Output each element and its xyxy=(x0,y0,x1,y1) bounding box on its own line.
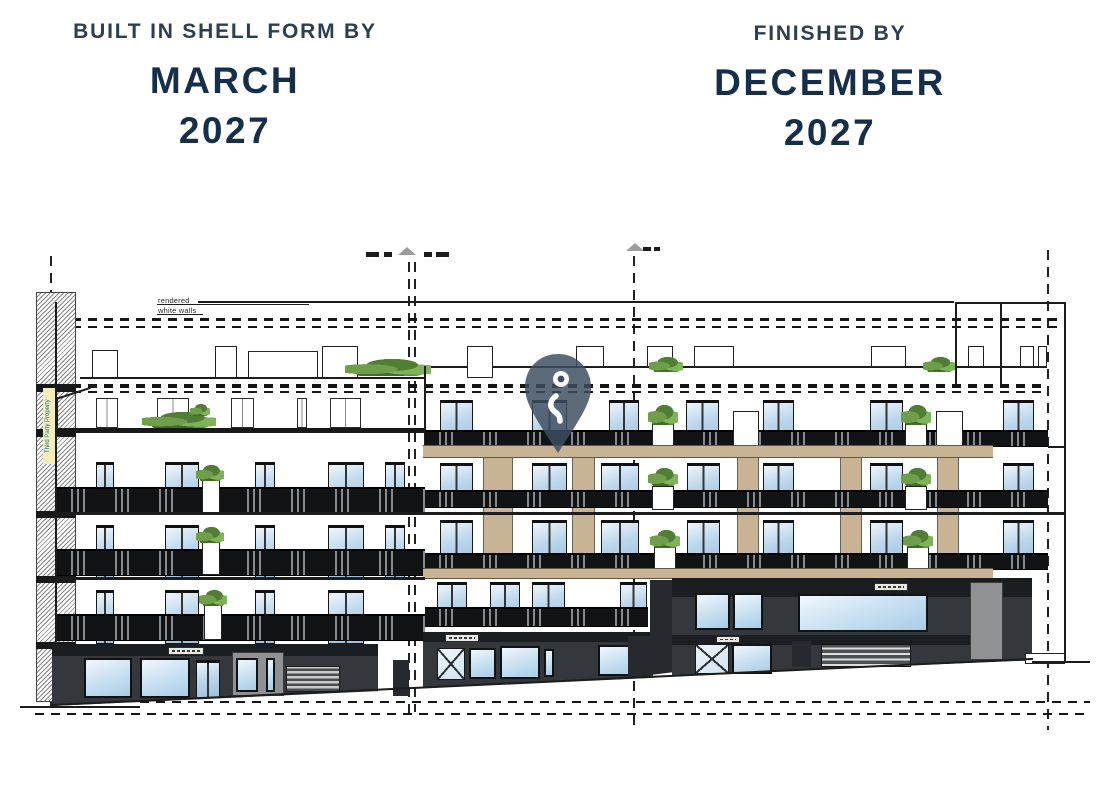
section-marker xyxy=(384,252,392,257)
planter-pot xyxy=(202,541,220,575)
plant xyxy=(196,465,224,481)
shop-window xyxy=(695,593,730,630)
roof-line xyxy=(198,301,954,303)
shop-window xyxy=(236,658,258,692)
plant xyxy=(901,405,931,425)
roof-structure xyxy=(248,351,318,378)
storefront-fascia xyxy=(52,644,378,656)
shop-sign xyxy=(168,647,204,655)
ground-line xyxy=(20,706,140,708)
shop-window xyxy=(140,658,190,698)
balcony-railing xyxy=(57,487,425,514)
elevation-drawing: rendered white walls Third Party Propert… xyxy=(0,0,1114,800)
balcony-railing xyxy=(425,490,1048,508)
wall-return xyxy=(650,580,674,675)
planter-box xyxy=(733,411,759,446)
party-wall-label: Third Party Property xyxy=(43,388,55,464)
plant xyxy=(901,468,931,486)
roof-hedge xyxy=(649,357,683,372)
shop-window xyxy=(544,649,554,677)
section-marker xyxy=(366,252,379,257)
roof-edge xyxy=(1000,302,1002,386)
edge-line xyxy=(1048,446,1065,448)
roof-edge xyxy=(955,302,957,386)
penthouse-window xyxy=(297,398,307,428)
planter-pot xyxy=(905,424,927,446)
glass-door xyxy=(437,648,465,680)
plant xyxy=(199,590,227,606)
shop-sign xyxy=(445,634,479,642)
roof-structure xyxy=(215,346,237,378)
ground-datum xyxy=(35,713,1090,715)
penthouse-window xyxy=(330,398,361,428)
planter-pot xyxy=(202,479,220,513)
section-marker xyxy=(436,252,449,257)
roof-structure xyxy=(92,350,118,378)
planter-pot xyxy=(654,547,676,570)
roof-hedge xyxy=(345,359,431,376)
louver-panel xyxy=(286,666,340,692)
shop-window xyxy=(500,646,540,679)
dark-panel xyxy=(393,660,409,696)
plant xyxy=(648,405,678,425)
parapet-edge xyxy=(56,397,58,429)
ground-line xyxy=(1032,661,1090,663)
plant xyxy=(648,468,678,486)
roof-structure xyxy=(968,346,984,367)
floor-slab xyxy=(55,512,1064,515)
roof-structure xyxy=(1020,346,1034,367)
door-panel xyxy=(792,641,811,667)
penthouse-window xyxy=(96,398,118,428)
roof-structure xyxy=(694,346,734,367)
ground-datum xyxy=(140,701,1090,703)
section-marker xyxy=(643,247,651,251)
roof-structure xyxy=(871,346,906,367)
shop-door xyxy=(196,660,220,698)
floor-slab xyxy=(55,428,425,433)
plant xyxy=(196,527,224,543)
section-marker xyxy=(424,252,432,257)
plant xyxy=(650,530,680,548)
floor-slab xyxy=(55,577,425,580)
terrace-plant xyxy=(190,404,210,416)
roof-line xyxy=(56,318,1064,321)
plant xyxy=(903,530,933,548)
planter-pot xyxy=(652,424,674,446)
planter-pot xyxy=(652,486,674,510)
roof-hedge xyxy=(923,357,955,372)
door-panel xyxy=(628,636,650,678)
shop-window xyxy=(469,648,496,679)
location-pin-icon xyxy=(522,352,594,456)
planter-pot xyxy=(905,486,927,510)
shop-window xyxy=(798,594,928,632)
glass-door xyxy=(695,644,729,674)
penthouse-window xyxy=(231,398,254,428)
shop-window xyxy=(266,658,275,692)
balcony-railing xyxy=(57,549,425,576)
page: BUILT IN SHELL FORM BY MARCH 2027 FINISH… xyxy=(0,0,1114,800)
shop-sign xyxy=(716,636,740,643)
section-marker xyxy=(398,247,416,255)
wall-panel xyxy=(970,582,1003,660)
balcony-railing xyxy=(57,614,425,641)
roof-line xyxy=(56,326,1064,328)
section-marker xyxy=(626,243,644,251)
building-edge xyxy=(1064,302,1066,662)
shop-sign xyxy=(874,583,908,591)
balcony-railing xyxy=(425,607,648,627)
leader-line xyxy=(157,304,309,305)
roof-structure xyxy=(467,346,493,378)
roof-structure xyxy=(1038,346,1047,367)
shop-window xyxy=(733,593,763,630)
facade-band xyxy=(423,445,993,458)
roof-edge xyxy=(955,302,1065,304)
planter-pot xyxy=(204,604,222,640)
planter-box xyxy=(936,411,963,446)
section-marker xyxy=(654,247,660,251)
leader-line xyxy=(157,314,203,315)
shop-window xyxy=(84,658,132,698)
planter-pot xyxy=(907,547,929,570)
